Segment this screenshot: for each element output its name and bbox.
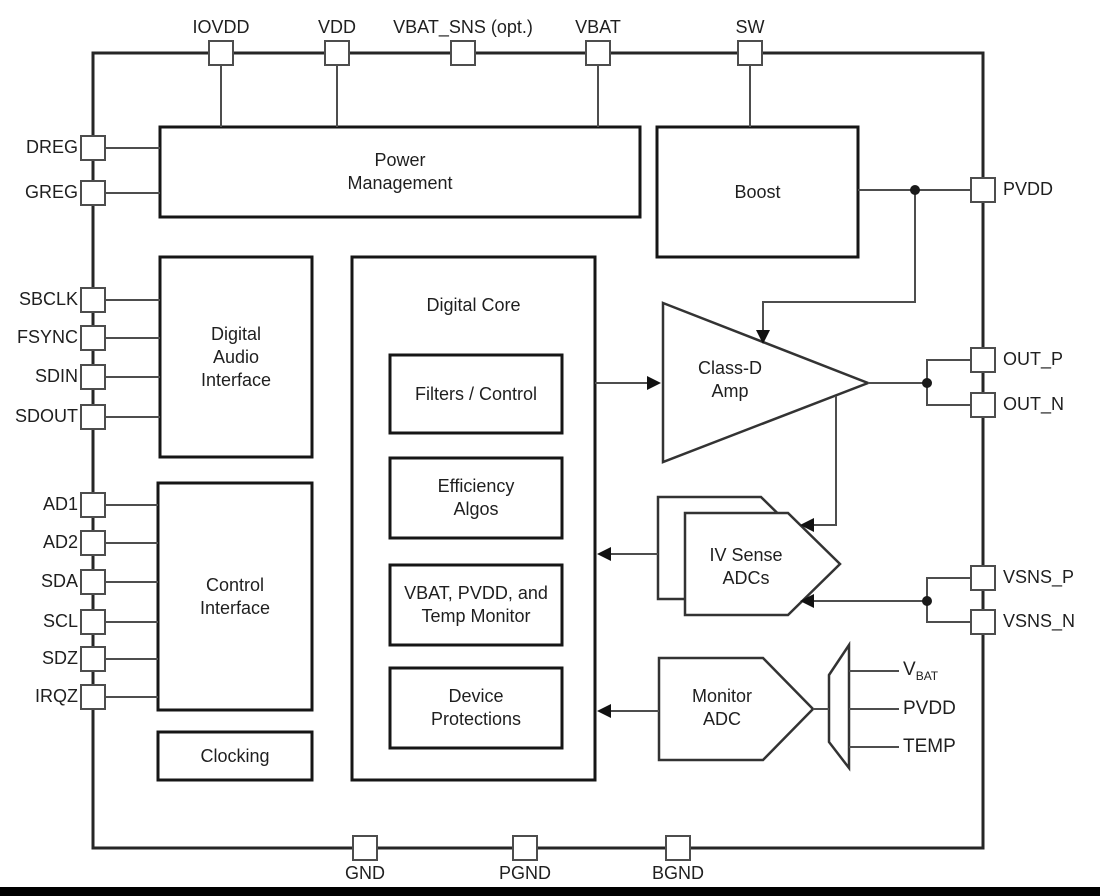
pin-label-out-n: OUT_N [1003,394,1064,415]
control-interface-label: Control Interface [158,483,312,710]
monitor-adc-label: Monitor ADC [652,683,792,733]
junction-dot-vsns [922,596,932,606]
pin-gnd [353,836,377,860]
pin-sdz [81,647,105,671]
pin-iovdd [209,41,233,65]
pin-label-fsync: FSYNC [0,327,78,348]
pin-sbclk [81,288,105,312]
pin-vsns-n [971,610,995,634]
pin-label-vsns-n: VSNS_N [1003,611,1075,632]
class-d-amp-label: Class-D Amp [660,355,800,405]
pin-bgnd [666,836,690,860]
digital-audio-interface-label: Digital Audio Interface [160,257,312,457]
pin-out-n [971,393,995,417]
filters-control-label: Filters / Control [390,355,562,433]
pin-label-ad1: AD1 [0,494,78,515]
pin-sda [81,570,105,594]
wire-vsns-bracket [927,578,971,622]
footer-bar [0,887,1100,896]
mux-output-pvdd-label: PVDD [903,698,956,720]
pin-pvdd [971,178,995,202]
iv-sense-adcs-label: IV Sense ADCs [676,542,816,592]
mux-output-vbat-label: VBAT [903,659,938,683]
pin-label-sdin: SDIN [0,366,78,387]
pin-label-sdz: SDZ [0,648,78,669]
pin-ad2 [81,531,105,555]
pin-vsns-p [971,566,995,590]
pin-sdin [81,365,105,389]
wire-out-bracket [927,360,971,405]
pin-label-sbclk: SBCLK [0,289,78,310]
pin-out-p [971,348,995,372]
pin-dreg [81,136,105,160]
power-management-label: Power Management [160,127,640,217]
pin-label-vbat: VBAT [513,17,683,38]
junction-dot-pvdd [910,185,920,195]
mux-output-vbat-main: V [903,659,916,680]
pin-label-ad2: AD2 [0,532,78,553]
pin-label-irqz: IRQZ [0,686,78,707]
pin-greg [81,181,105,205]
mux-output-temp-label: TEMP [903,736,956,758]
pin-label-scl: SCL [0,611,78,632]
digital-core-label: Digital Core [352,292,595,318]
vbat-pvdd-temp-monitor-label: VBAT, PVDD, and Temp Monitor [390,565,562,645]
mux-output-vbat-sub: BAT [916,669,938,683]
pin-label-vsns-p: VSNS_P [1003,567,1074,588]
pin-label-pvdd: PVDD [1003,179,1053,200]
pin-scl [81,610,105,634]
pin-label-pgnd: PGND [465,863,585,884]
pin-vdd [325,41,349,65]
arrow-ivsense-to-core [597,547,611,561]
pin-label-sw: SW [665,17,835,38]
arrow-monitor-to-core [597,704,611,718]
pin-irqz [81,685,105,709]
boost-label: Boost [657,127,858,257]
monitor-mux-shape [829,645,849,768]
clocking-label: Clocking [158,732,312,780]
pin-pgnd [513,836,537,860]
efficiency-algos-label: Efficiency Algos [390,458,562,538]
pin-ad1 [81,493,105,517]
pin-label-gnd: GND [305,863,425,884]
pin-label-dreg: DREG [0,137,78,158]
pin-sw [738,41,762,65]
pin-sdout [81,405,105,429]
pin-vbat [586,41,610,65]
wire-amp-to-ivsense [807,396,836,525]
pin-label-greg: GREG [0,182,78,203]
pin-vbat-sns [451,41,475,65]
pin-label-bgnd: BGND [618,863,738,884]
pin-label-out-p: OUT_P [1003,349,1063,370]
block-diagram: IOVDD VDD VBAT_SNS (opt.) VBAT SW DREG G… [0,0,1100,896]
arrow-core-to-amp [647,376,661,390]
junction-dot-out [922,378,932,388]
device-protections-label: Device Protections [390,668,562,748]
pin-label-sda: SDA [0,571,78,592]
pin-fsync [81,326,105,350]
pin-label-sdout: SDOUT [0,406,78,427]
